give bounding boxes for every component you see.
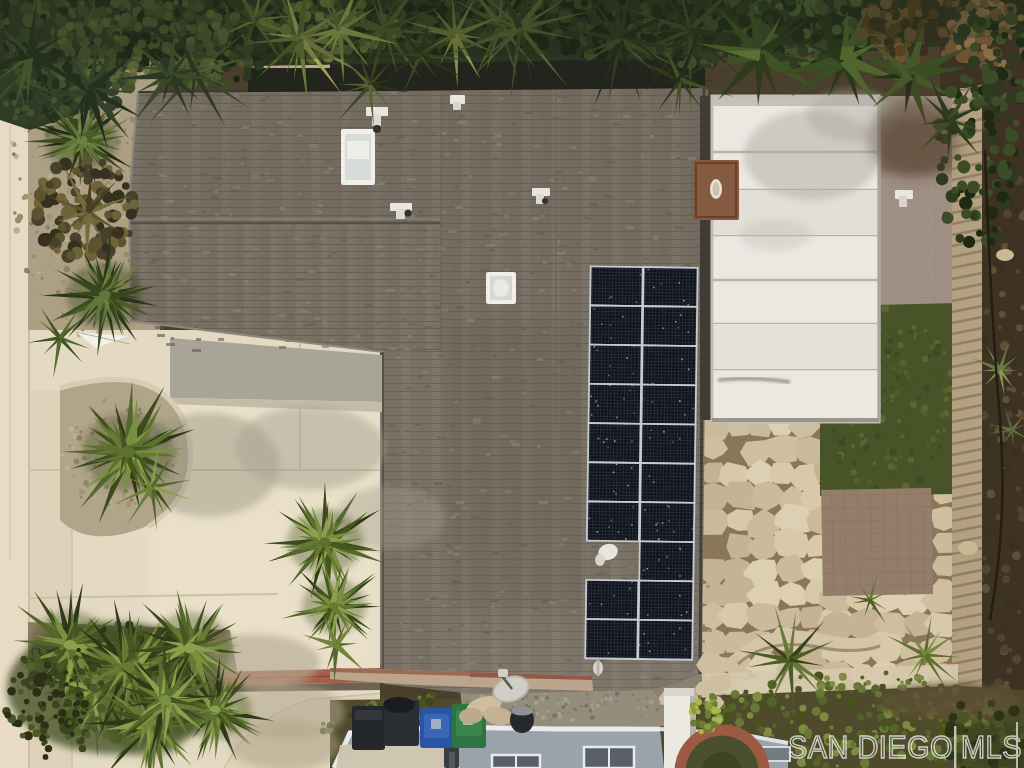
svg-text:MLS: MLS — [961, 730, 1022, 764]
svg-text:SAN DIEGO: SAN DIEGO — [788, 730, 953, 764]
